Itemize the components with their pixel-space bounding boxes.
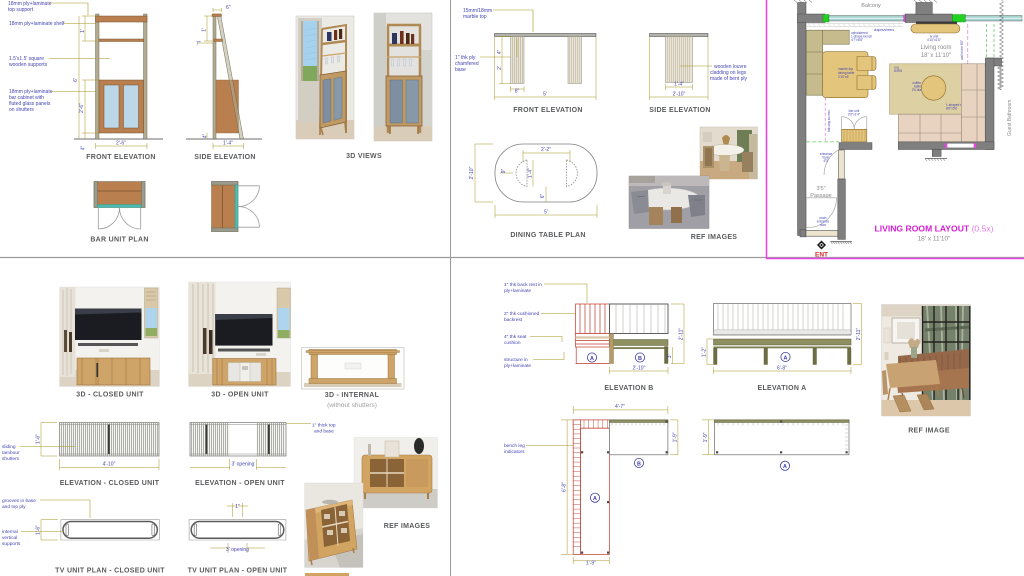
svg-text:3D VIEWS: 3D VIEWS [346, 153, 382, 160]
svg-text:bench leg: bench leg [504, 443, 525, 449]
svg-text:wall niche 8'0": wall niche 8'0" [960, 40, 964, 60]
svg-text:1'-9": 1'-9" [672, 432, 678, 442]
svg-text:A: A [784, 355, 788, 361]
svg-text:marble top: marble top [463, 14, 487, 20]
svg-text:vertical: vertical [2, 535, 17, 541]
svg-text:sliding: sliding [2, 444, 16, 450]
svg-text:3D - OPEN UNIT: 3D - OPEN UNIT [211, 392, 269, 399]
svg-text:shutters: shutters [2, 456, 20, 462]
svg-text:drapes/sheers: drapes/sheers [874, 28, 895, 32]
svg-text:8": 8" [515, 89, 520, 95]
svg-text:on shutters: on shutters [9, 107, 34, 113]
svg-text:door: door [820, 223, 827, 227]
svg-text:4": 4" [497, 50, 503, 55]
svg-text:5': 5' [544, 210, 548, 216]
svg-text:ELEVATION - CLOSED UNIT: ELEVATION - CLOSED UNIT [60, 480, 160, 487]
svg-text:3": 3" [667, 354, 673, 359]
svg-text:1': 1' [202, 28, 208, 32]
svg-text:2'6 dia: 2'6 dia [912, 88, 922, 92]
svg-text:9": 9" [501, 169, 507, 174]
svg-text:2'-11": 2'-11" [679, 328, 685, 341]
svg-text:3' opening: 3' opening [232, 462, 255, 468]
svg-text:7": 7" [196, 41, 201, 47]
svg-text:ply+laminate: ply+laminate [504, 288, 531, 294]
svg-text:3' opening: 3' opening [226, 547, 249, 553]
svg-text:FRONT ELEVATION: FRONT ELEVATION [86, 154, 156, 161]
svg-text:structure in: structure in [504, 357, 528, 363]
svg-text:6': 6' [73, 78, 79, 82]
svg-text:Living room: Living room [920, 45, 951, 51]
svg-text:ELEVATION B: ELEVATION B [604, 385, 653, 392]
svg-text:grooves in base: grooves in base [2, 498, 36, 504]
svg-text:backrest: backrest [504, 317, 523, 323]
svg-text:2': 2' [497, 66, 503, 70]
svg-text:REF IMAGE: REF IMAGE [908, 428, 950, 435]
svg-text:2'-10": 2'-10" [633, 366, 646, 372]
svg-text:A: A [593, 496, 597, 502]
svg-text:ENT: ENT [815, 252, 828, 259]
svg-text:A: A [783, 464, 787, 470]
svg-text:1'-6": 1'-6" [36, 525, 42, 535]
svg-text:made of bent ply: made of bent ply [710, 76, 747, 82]
svg-text:4'10"x1'6": 4'10"x1'6" [927, 38, 941, 42]
svg-text:4" thk seat: 4" thk seat [504, 334, 527, 340]
svg-text:3'5": 3'5" [816, 186, 825, 192]
svg-text:18' x 11'10": 18' x 11'10" [921, 53, 951, 59]
svg-text:B: B [637, 461, 641, 467]
svg-text:wooden supports: wooden supports [9, 62, 48, 68]
svg-text:4": 4" [203, 134, 209, 139]
svg-text:2'-11": 2'-11" [856, 328, 862, 341]
svg-text:2'-6": 2'-6" [79, 103, 85, 113]
svg-text:6'-8": 6'-8" [562, 482, 568, 492]
svg-text:REF IMAGES: REF IMAGES [691, 234, 738, 241]
svg-text:6": 6" [540, 194, 546, 199]
svg-text:2'-10": 2'-10" [469, 166, 475, 179]
svg-text:BAR UNIT PLAN: BAR UNIT PLAN [90, 237, 148, 244]
svg-text:6'-8": 6'-8" [777, 366, 787, 372]
svg-text:ELEVATION A: ELEVATION A [757, 385, 806, 392]
svg-text:1'-9": 1'-9" [703, 432, 709, 442]
svg-text:2'-6": 2'-6" [116, 141, 126, 147]
svg-text:top support: top support [8, 7, 34, 13]
svg-text:Balcony: Balcony [861, 3, 881, 9]
svg-text:4'-7": 4'-7" [615, 404, 625, 410]
svg-text:18' x 11'10": 18' x 11'10" [918, 236, 952, 243]
svg-text:base: base [455, 67, 466, 73]
svg-text:5': 5' [543, 92, 547, 98]
svg-text:supports: supports [2, 541, 21, 547]
svg-text:2'10"x5': 2'10"x5' [838, 75, 849, 79]
svg-text:and base: and base [314, 429, 334, 435]
svg-text:4": 4" [81, 146, 87, 151]
svg-text:2'-10": 2'-10" [673, 92, 686, 98]
svg-text:LIVING ROOM LAYOUT (0.5x): LIVING ROOM LAYOUT (0.5x) [874, 224, 993, 234]
svg-text:1'-2": 1'-2" [702, 347, 708, 357]
svg-text:A: A [590, 356, 594, 362]
svg-text:4'0": 4'0" [823, 159, 828, 163]
svg-text:indicators: indicators [504, 449, 525, 455]
svg-text:3D - INTERNAL: 3D - INTERNAL [325, 392, 380, 399]
svg-text:3D - CLOSED UNIT: 3D - CLOSED UNIT [76, 392, 144, 399]
svg-text:18mm ply+laminate shelf: 18mm ply+laminate shelf [9, 21, 65, 27]
svg-text:Guest Bathroom: Guest Bathroom [1007, 100, 1013, 136]
svg-text:B: B [638, 356, 642, 362]
svg-text:SIDE ELEVATION: SIDE ELEVATION [194, 154, 256, 161]
svg-text:and top ply: and top ply [2, 504, 26, 510]
svg-text:2" thk cushioned: 2" thk cushioned [504, 311, 540, 317]
svg-text:TV UNIT PLAN - OPEN UNIT: TV UNIT PLAN - OPEN UNIT [188, 568, 288, 575]
svg-text:SIDE ELEVATION: SIDE ELEVATION [649, 107, 711, 114]
svg-text:1'-4": 1'-4" [528, 168, 534, 178]
svg-text:FRONT ELEVATION: FRONT ELEVATION [513, 107, 583, 114]
svg-text:REF IMAGES: REF IMAGES [384, 523, 431, 530]
svg-text:8'6"x5'6: 8'6"x5'6 [946, 107, 957, 111]
svg-text:1'-9": 1'-9" [586, 561, 596, 567]
svg-text:4'-10": 4'-10" [103, 462, 116, 468]
svg-text:tambour: tambour [2, 450, 20, 456]
svg-text:internal: internal [2, 529, 18, 535]
svg-text:DINING TABLE PLAN: DINING TABLE PLAN [510, 232, 585, 239]
svg-text:1': 1' [80, 29, 86, 33]
svg-text:TV UNIT PLAN - CLOSED UNIT: TV UNIT PLAN - CLOSED UNIT [55, 568, 165, 575]
svg-text:1" thick top: 1" thick top [312, 423, 336, 429]
svg-text:balcony access: balcony access [827, 110, 831, 132]
svg-text:6": 6" [226, 5, 231, 11]
svg-text:2'-2": 2'-2" [541, 147, 551, 153]
svg-text:ply+laminate: ply+laminate [504, 363, 531, 369]
svg-text:1'-4": 1'-4" [223, 141, 233, 147]
svg-text:1": 1" [235, 504, 240, 510]
svg-text:(without shutters): (without shutters) [327, 402, 377, 409]
svg-text:cushion: cushion [504, 340, 521, 346]
svg-text:4'7"x6'8": 4'7"x6'8" [851, 38, 863, 42]
svg-text:ELEVATION - OPEN UNIT: ELEVATION - OPEN UNIT [195, 480, 285, 487]
svg-text:1'-4": 1'-4" [674, 82, 684, 88]
svg-text:2'6"x1'4": 2'6"x1'4" [848, 113, 860, 117]
svg-text:8'x5'6: 8'x5'6 [894, 69, 902, 73]
svg-text:1" thk back rest in: 1" thk back rest in [504, 282, 542, 288]
svg-text:1'-6": 1'-6" [36, 434, 42, 444]
